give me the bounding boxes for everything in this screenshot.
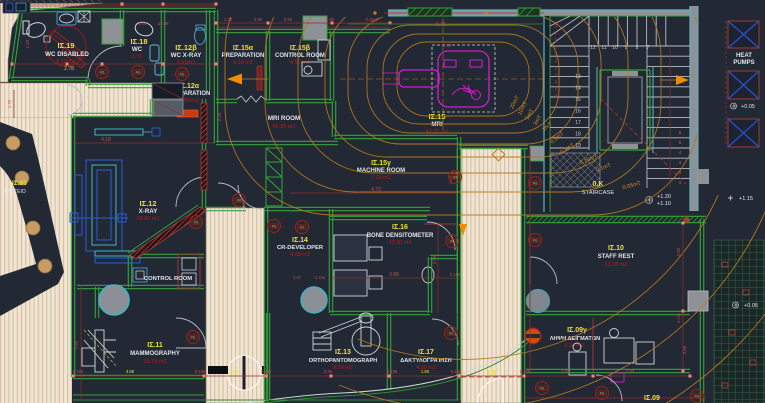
- svg-text:1.76: 1.76: [132, 54, 143, 60]
- svg-text:5.31: 5.31: [436, 22, 446, 28]
- svg-text:MRI: MRI: [431, 121, 443, 128]
- svg-text:46.25 m2: 46.25 m2: [273, 124, 296, 130]
- svg-text:2.65m2: 2.65m2: [177, 60, 195, 66]
- svg-text:0.155: 0.155: [451, 369, 462, 374]
- svg-text:ΦΒ: ΦΒ: [136, 71, 141, 75]
- svg-text:ΙΣ.15α: ΙΣ.15α: [233, 45, 254, 52]
- svg-text:3.35: 3.35: [324, 369, 333, 374]
- svg-text:17: 17: [575, 120, 581, 126]
- svg-text:3.88: 3.88: [126, 369, 135, 374]
- svg-text:ΙΣ.03: ΙΣ.03: [12, 180, 27, 187]
- svg-text:10.75 m2: 10.75 m2: [144, 359, 167, 365]
- svg-text:2.78: 2.78: [64, 66, 74, 72]
- svg-text:ΙΣ.15β: ΙΣ.15β: [290, 45, 311, 52]
- svg-text:ΦΒ: ΦΒ: [237, 199, 242, 203]
- svg-text:ΙΣ.17: ΙΣ.17: [418, 349, 434, 356]
- svg-text:8: 8: [636, 45, 639, 51]
- svg-text:ΙΣ.12β: ΙΣ.12β: [175, 43, 197, 52]
- svg-text:1.90: 1.90: [326, 17, 335, 22]
- svg-text:PUMPS: PUMPS: [733, 60, 754, 66]
- svg-text:0.90: 0.90: [139, 21, 148, 26]
- svg-text:ΦΒ: ΦΒ: [272, 225, 277, 229]
- svg-text:ΦΒ: ΦΒ: [194, 221, 199, 225]
- svg-text:ΦΒ: ΦΒ: [533, 182, 538, 186]
- svg-text:WC: WC: [132, 46, 143, 53]
- svg-text:11: 11: [601, 45, 606, 51]
- svg-text:Η-ΛΟΓΕΙΟ: Η-ΛΟΓΕΙΟ: [2, 189, 26, 195]
- svg-text:ΦΒ: ΦΒ: [600, 392, 605, 396]
- svg-text:STAFF REST: STAFF REST: [598, 254, 635, 260]
- svg-text:16: 16: [575, 109, 581, 115]
- svg-text:ΙΣ.13: ΙΣ.13: [335, 349, 351, 356]
- svg-text:PREPARATION: PREPARATION: [222, 53, 265, 59]
- svg-text:ΦΒ: ΦΒ: [453, 176, 458, 180]
- svg-text:2.34: 2.34: [217, 112, 222, 121]
- svg-text:0.125: 0.125: [520, 369, 531, 374]
- svg-text:CONTROL ROOM: CONTROL ROOM: [144, 276, 192, 282]
- svg-text:+0.05: +0.05: [744, 303, 758, 309]
- svg-text:ΦΒ: ΦΒ: [180, 73, 185, 77]
- svg-text:CONTROL ROOM: CONTROL ROOM: [275, 53, 325, 59]
- svg-text:2.82: 2.82: [676, 247, 681, 256]
- svg-text:7: 7: [647, 45, 650, 51]
- svg-text:13.08 m2: 13.08 m2: [605, 262, 628, 268]
- svg-text:0.90: 0.90: [284, 17, 293, 22]
- svg-text:18.80 m2: 18.80 m2: [137, 216, 160, 222]
- svg-text:9.00 m2: 9.00 m2: [333, 365, 353, 371]
- svg-text:WC DISABLED: WC DISABLED: [45, 51, 89, 58]
- svg-text:0.125: 0.125: [676, 312, 681, 323]
- svg-text:MAMMOGRAPHY: MAMMOGRAPHY: [130, 351, 180, 357]
- svg-text:0.90: 0.90: [254, 17, 263, 22]
- svg-text:ΦΒ: ΦΒ: [449, 332, 454, 336]
- svg-text:0.155: 0.155: [73, 369, 84, 374]
- svg-text:4.50 m2: 4.50 m2: [290, 60, 310, 66]
- svg-text:ΙΣ.18: ΙΣ.18: [130, 37, 147, 46]
- svg-text:40.25 m2: 40.25 m2: [426, 129, 449, 135]
- svg-text:ΦΒ: ΦΒ: [100, 71, 105, 75]
- svg-text:1.47: 1.47: [293, 275, 302, 280]
- svg-text:ΙΣ.14: ΙΣ.14: [292, 237, 308, 244]
- svg-text:HEAT: HEAT: [736, 53, 752, 59]
- svg-text:1.80: 1.80: [230, 369, 239, 374]
- svg-text:ΦΒ: ΦΒ: [533, 239, 538, 243]
- svg-text:+1.20: +1.20: [657, 194, 671, 200]
- svg-text:3.56: 3.56: [682, 345, 687, 354]
- svg-text:ΦΒ: ΦΒ: [191, 336, 196, 340]
- svg-text:18: 18: [575, 132, 581, 138]
- svg-text:CR-DEVELOPER: CR-DEVELOPER: [277, 245, 324, 251]
- svg-text:7.00 m2: 7.00 m2: [371, 175, 391, 181]
- svg-text:+1.15: +1.15: [739, 196, 753, 202]
- svg-text:ΙΣ.09: ΙΣ.09: [644, 395, 660, 402]
- svg-text:ΙΣ.09γ: ΙΣ.09γ: [567, 327, 587, 334]
- svg-text:ΦΒ: ΦΒ: [540, 387, 545, 391]
- svg-text:ΦΒ: ΦΒ: [300, 226, 305, 230]
- svg-text:ΙΣ.10: ΙΣ.10: [608, 245, 624, 252]
- svg-text:3.88: 3.88: [389, 272, 399, 278]
- svg-text:ΙΣ.15γ: ΙΣ.15γ: [371, 160, 391, 167]
- svg-text:BONE DENSITOMETER: BONE DENSITOMETER: [367, 233, 434, 239]
- svg-text:0.155: 0.155: [387, 369, 398, 374]
- svg-text:ΦΒ: ΦΒ: [450, 240, 455, 244]
- svg-text:2.00: 2.00: [561, 369, 570, 374]
- svg-text:X-RAY: X-RAY: [139, 208, 159, 215]
- svg-text:ΦΒ: ΦΒ: [695, 395, 700, 399]
- svg-text:0.155: 0.155: [261, 369, 272, 374]
- svg-text:+1.10: +1.10: [657, 201, 671, 207]
- svg-text:1.80: 1.80: [421, 369, 430, 374]
- svg-text:12: 12: [590, 45, 596, 51]
- svg-text:ΙΣ.15: ΙΣ.15: [428, 112, 445, 121]
- svg-text:0.13: 0.13: [443, 43, 452, 48]
- svg-text:ORTHOPANTOMOGRAPH: ORTHOPANTOMOGRAPH: [309, 358, 377, 364]
- svg-text:+0.05: +0.05: [741, 104, 755, 110]
- svg-text:ΙΣ.19: ΙΣ.19: [57, 41, 74, 50]
- svg-text:1.52: 1.52: [25, 39, 30, 48]
- svg-text:ΙΣ.16: ΙΣ.16: [392, 224, 408, 231]
- svg-text:ΙΣ.12: ΙΣ.12: [139, 199, 156, 208]
- svg-text:1.30: 1.30: [224, 17, 233, 22]
- svg-text:MRI ROOM: MRI ROOM: [268, 115, 300, 122]
- svg-text:2.93: 2.93: [626, 369, 635, 374]
- svg-text:1.90: 1.90: [488, 369, 497, 374]
- svg-text:4.18: 4.18: [101, 137, 111, 143]
- svg-text:4.08 m2: 4.08 m2: [290, 252, 310, 258]
- svg-text:1.70: 1.70: [7, 99, 12, 108]
- svg-text:0.155: 0.155: [195, 369, 206, 374]
- svg-text:ΙΣ.11: ΙΣ.11: [147, 342, 163, 349]
- svg-text:19: 19: [575, 143, 581, 149]
- svg-text:10.30 m2: 10.30 m2: [389, 240, 412, 246]
- svg-text:WC X-RAY: WC X-RAY: [171, 52, 203, 59]
- svg-text:3.10 m2: 3.10 m2: [233, 60, 253, 66]
- svg-text:Δ0.08: Δ0.08: [158, 21, 170, 26]
- svg-text:2.92: 2.92: [74, 340, 79, 349]
- svg-text:N: N: [691, 73, 694, 78]
- svg-text:10: 10: [612, 45, 618, 51]
- svg-text:0.155: 0.155: [450, 272, 461, 277]
- svg-text:0.1513: 0.1513: [366, 17, 379, 22]
- svg-text:2.90: 2.90: [432, 255, 437, 264]
- svg-text:0.155: 0.155: [315, 275, 326, 280]
